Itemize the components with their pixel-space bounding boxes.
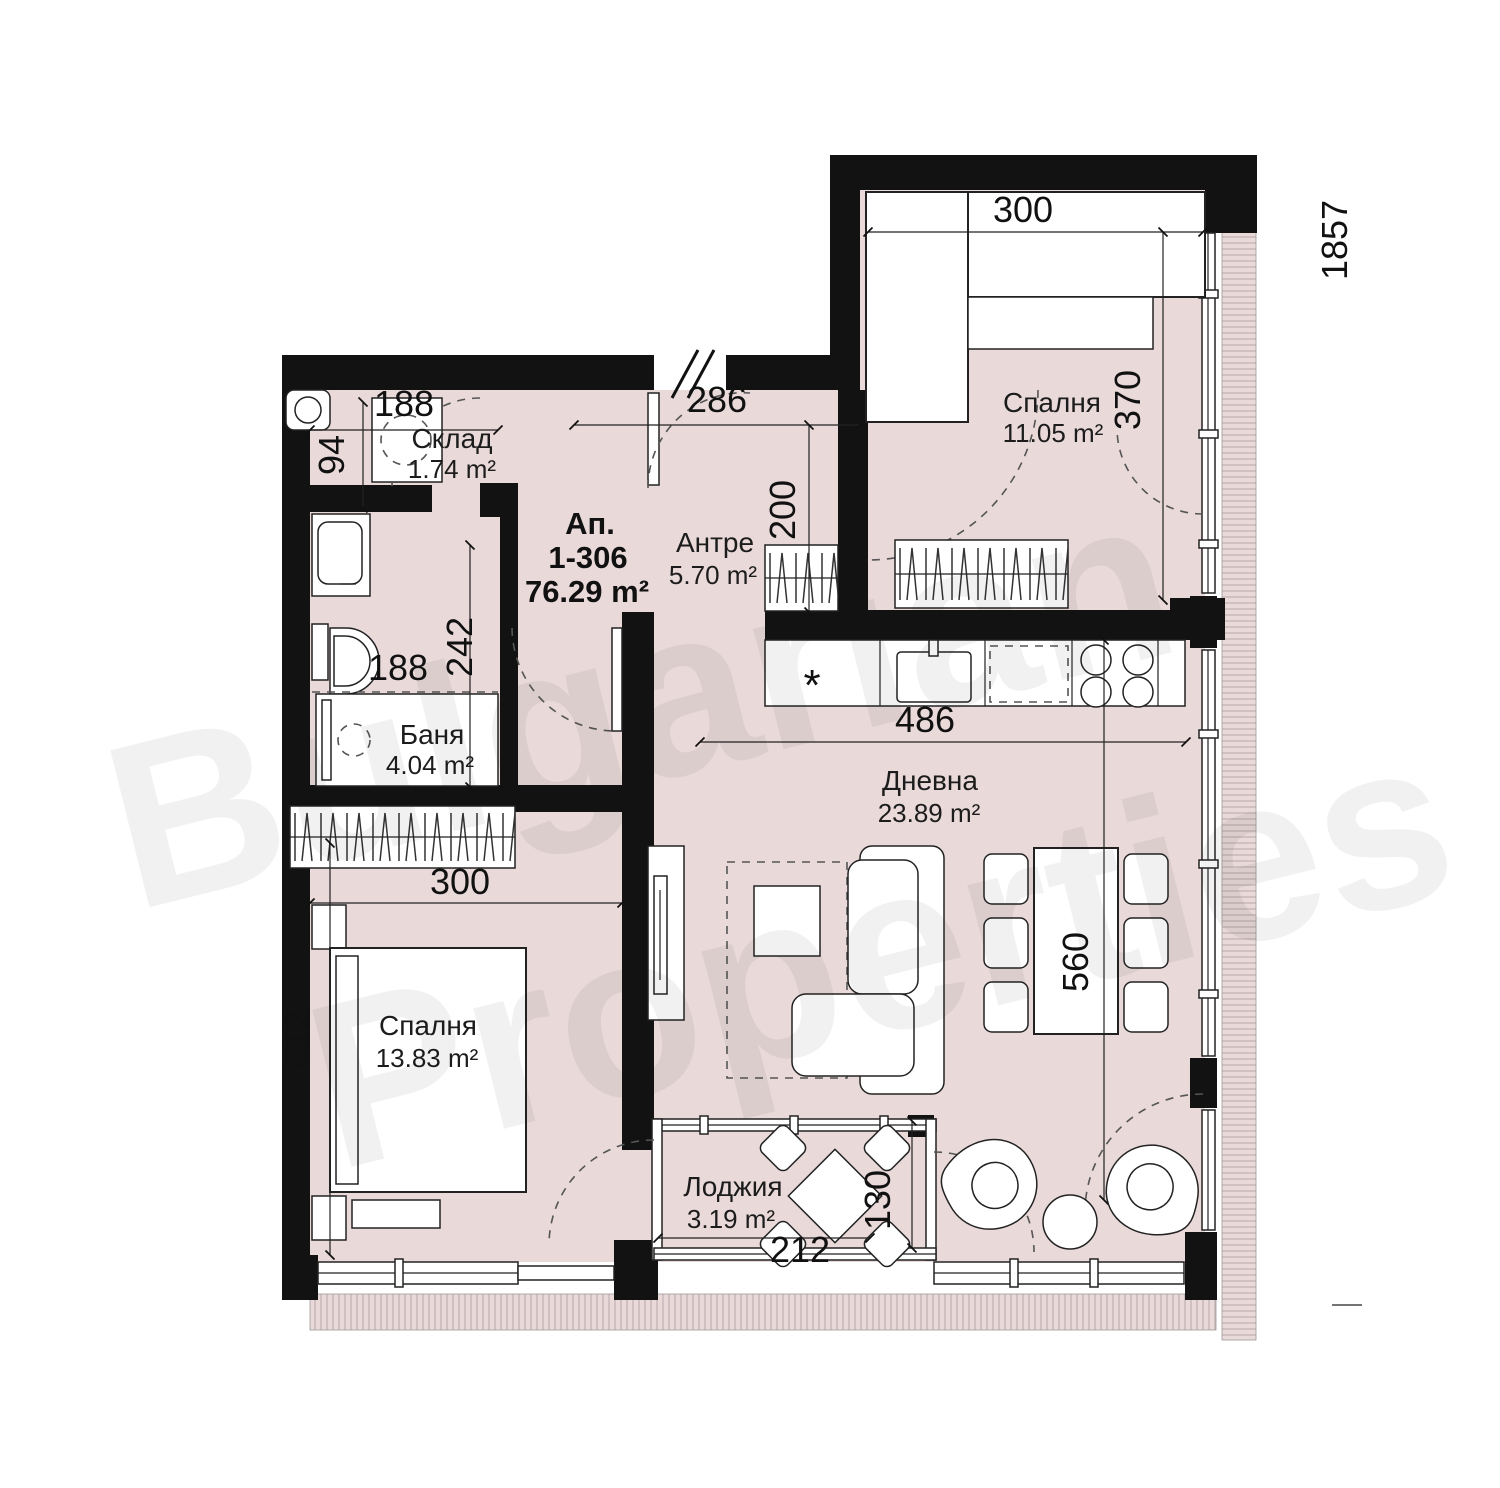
dim-storage-width: 188 (374, 383, 434, 424)
apartment-number: 1-306 (548, 540, 627, 575)
room-label-storage: Склад (411, 423, 492, 454)
floor-plan-page: * (0, 0, 1500, 1488)
side-table (1043, 1195, 1097, 1249)
room-area-loggia: 3.19 m² (687, 1204, 775, 1234)
boiler (286, 390, 330, 430)
room-label-bedroom1: Спалня (1003, 387, 1101, 418)
dim-overall: 1857 (1314, 200, 1355, 280)
room-label-loggia: Лоджия (683, 1171, 782, 1202)
dim-loggia-width: 212 (770, 1229, 830, 1270)
dim-hall-width: 286 (687, 379, 747, 420)
dim-bedroom1-height: 370 (1107, 370, 1148, 430)
room-area-storage: 1.74 m² (408, 454, 496, 484)
dim-storage-height: 94 (311, 435, 352, 475)
apartment-prefix: Ап. (565, 506, 615, 541)
bathroom-sink (312, 514, 370, 596)
dim-loggia-height: 130 (857, 1170, 898, 1230)
floor-plan: * (0, 0, 1500, 1488)
facade-strip-bottom (310, 1294, 1216, 1330)
room-area-bedroom1: 11.05 m² (1003, 418, 1104, 448)
dim-bedroom1-width: 300 (993, 189, 1053, 230)
